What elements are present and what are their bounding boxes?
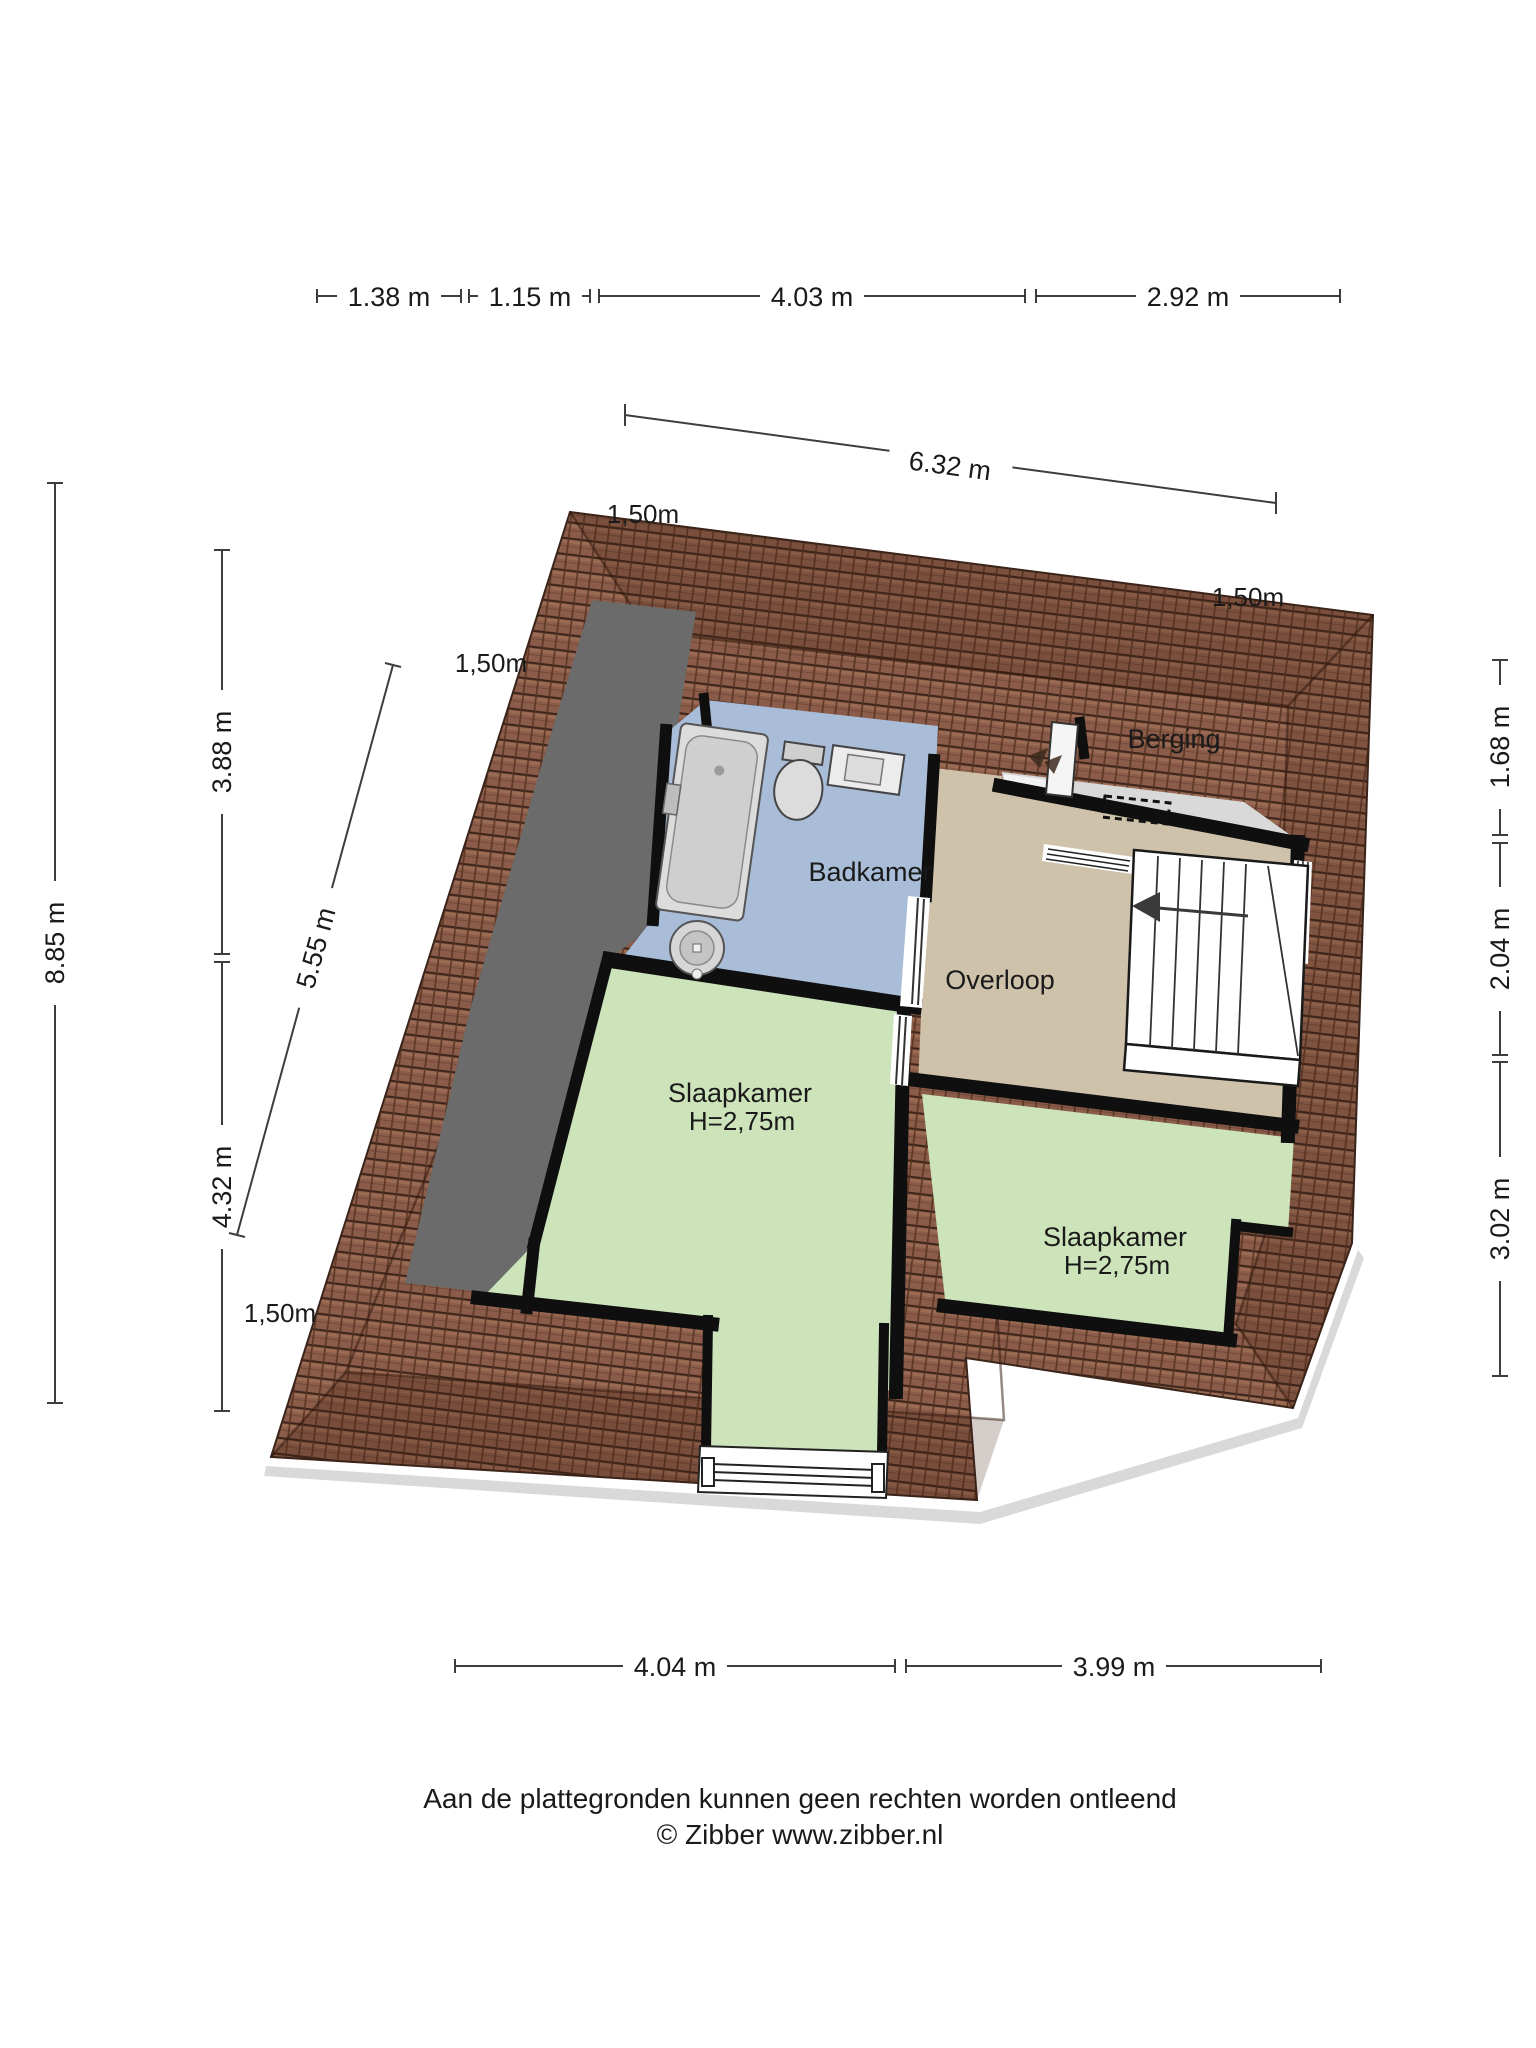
overhang-label-right: 1,50m [1212,582,1284,612]
window-dormer-post [702,1458,714,1486]
dim-left-total: 8.85 m [39,483,71,1403]
dim-width-total: 6.32 m [625,404,1276,514]
window-dormer-post [872,1464,884,1492]
dim-top-3: 4.03 m [771,282,854,312]
washbasin-unit [828,745,905,795]
room-ceiling-slaapkamer-links: H=2,75m [689,1106,795,1136]
dim-right-segments: 1.68 m 2.04 m 3.02 m [1484,660,1516,1376]
dim-bottom-chain: 4.04 m 3.99 m [455,1651,1321,1682]
room-label-badkamer: Badkamer [808,857,931,887]
floorplan-canvas: Badkamer Berging Overloop Slaapkamer H=2… [0,0,1536,2048]
overhang-label-top: 1,50m [607,499,679,529]
wall [1080,722,1084,754]
dim-diagonal-label: 5.55 m [291,904,342,992]
dim-top-4: 2.92 m [1147,282,1230,312]
room-label-berging: Berging [1127,724,1220,754]
dim-top-1: 1.38 m [348,282,431,312]
wall [706,1320,708,1450]
dim-left-seg-1: 3.88 m [207,711,237,794]
room-label-slaapkamer-links: Slaapkamer [668,1078,812,1108]
stairs [1124,850,1308,1086]
footer-copyright: © Zibber www.zibber.nl [657,1819,944,1850]
footer-disclaimer: Aan de plattegronden kunnen geen rechten… [423,1783,1176,1814]
room-label-slaapkamer-rechts: Slaapkamer [1043,1222,1187,1252]
dim-left-seg-2: 4.32 m [207,1146,237,1229]
overhang-label-bottom: 1,50m [244,1298,316,1328]
dim-left-segments: 3.88 m 4.32 m [206,550,238,1411]
dim-left-total-label: 8.85 m [40,902,70,985]
dim-bottom-2: 3.99 m [1073,1652,1156,1682]
dim-top-2: 1.15 m [489,282,572,312]
dim-bottom-1: 4.04 m [634,1652,717,1682]
page: { "document": { "type": "floorplan", "fl… [0,0,1536,2048]
dim-right-seg-1: 1.68 m [1485,706,1515,789]
dim-right-seg-2: 2.04 m [1485,908,1515,991]
wall [1236,1226,1288,1232]
room-ceiling-slaapkamer-rechts: H=2,75m [1064,1250,1170,1280]
dim-top-chain: 1.38 m 1.15 m 4.03 m 2.92 m [317,281,1340,312]
dim-width-total-label: 6.32 m [907,446,993,487]
overhang-label-left: 1,50m [455,648,527,678]
room-label-overloop: Overloop [945,965,1055,995]
footer: Aan de plattegronden kunnen geen rechten… [423,1783,1176,1850]
wall [882,1328,884,1454]
dim-right-seg-3: 3.02 m [1485,1178,1515,1261]
